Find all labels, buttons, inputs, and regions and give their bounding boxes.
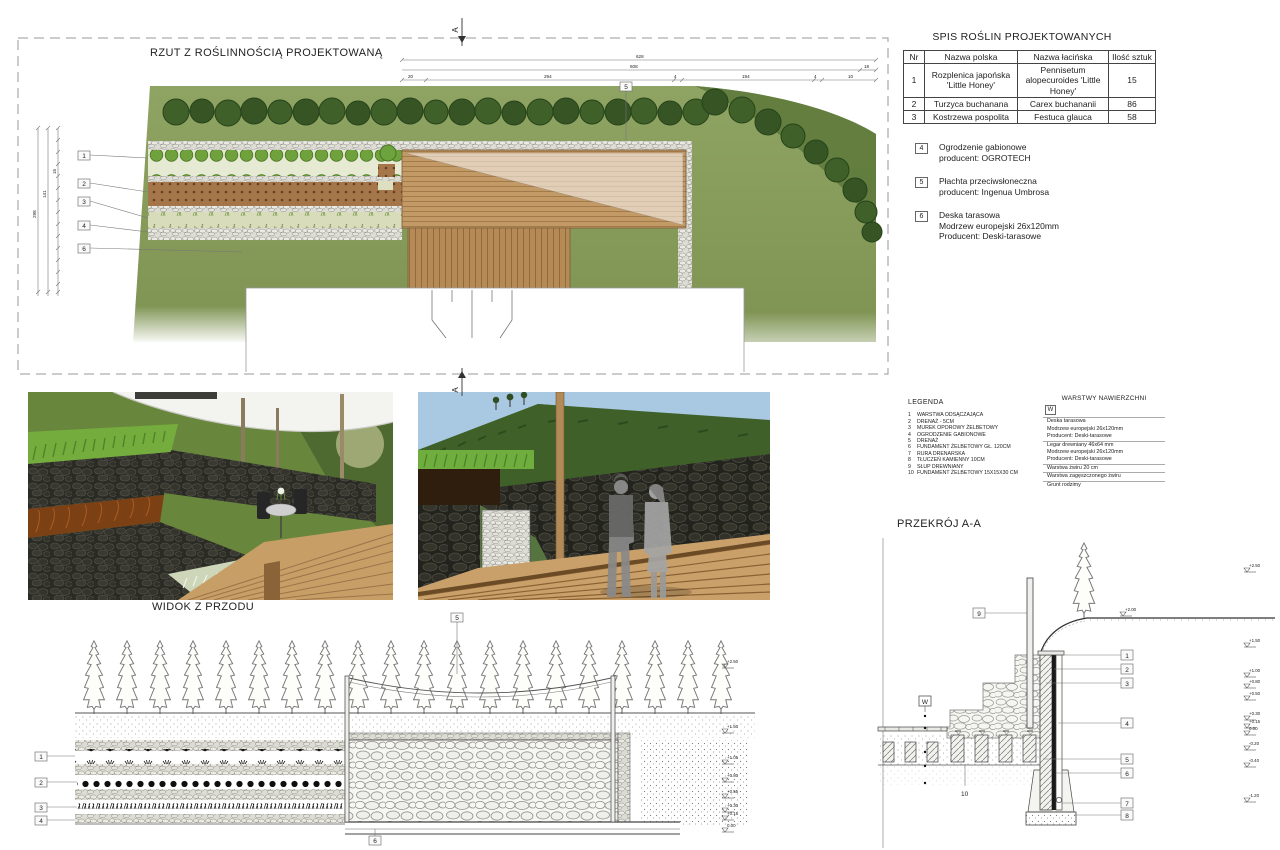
svg-text:4: 4 [814, 74, 817, 79]
layer-line: Producent: Deski-tarasowe [1043, 433, 1165, 440]
plan-title: RZUT Z ROŚLINNOŚCIĄ PROJEKTOWANĄ [150, 47, 383, 59]
layer-line: Legar drewniany 46x64 mm [1043, 441, 1165, 449]
plan-cutout [246, 288, 744, 374]
cell: Turzyca buchanana [925, 97, 1018, 110]
svg-text:0.00: 0.00 [1249, 726, 1258, 731]
svg-text:+1.00: +1.00 [1249, 668, 1261, 673]
svg-text:1: 1 [39, 754, 43, 761]
note-deck-board: 6 Deska tarasowa Modrzew europejski 26x1… [915, 210, 1059, 242]
svg-text:1: 1 [82, 153, 86, 160]
svg-text:10: 10 [961, 791, 969, 798]
plan-planting-strips [148, 141, 402, 240]
svg-text:+1.50: +1.50 [1249, 638, 1261, 643]
svg-text:+2.00: +2.00 [1125, 607, 1137, 612]
svg-text:18: 18 [864, 64, 870, 69]
note-gabion-fence: 4 Ogrodzenie gabionowe producent: OGROTE… [915, 142, 1031, 163]
svg-text:+1.05: +1.05 [727, 755, 739, 760]
svg-text:8: 8 [1125, 813, 1129, 820]
svg-text:A: A [451, 387, 460, 393]
svg-text:6: 6 [1125, 771, 1129, 778]
note-number: 6 [915, 211, 928, 222]
front-gabion-wall [345, 733, 630, 822]
svg-text:2: 2 [82, 181, 86, 188]
svg-text:6: 6 [373, 838, 377, 845]
note-line: Producent: Deski-tarasowe [939, 231, 1059, 242]
render-terrace-perspective [28, 392, 393, 600]
svg-text:+2.50: +2.50 [727, 659, 739, 664]
note-line: producent: Ingenua Umbrosa [939, 187, 1049, 198]
svg-text:628: 628 [636, 54, 644, 59]
svg-text:3: 3 [82, 199, 86, 206]
svg-text:298: 298 [32, 210, 37, 218]
svg-text:-0.40: -0.40 [1249, 758, 1260, 763]
plan-top-dimensions: 628 608 18 20 294 4 194 4 10 [400, 54, 878, 82]
svg-text:2: 2 [39, 780, 43, 787]
svg-text:15: 15 [52, 168, 57, 174]
svg-text:4: 4 [82, 223, 86, 230]
note-line: Ogrodzenie gabionowe [939, 142, 1031, 153]
svg-text:4: 4 [39, 818, 43, 825]
plant-table-header-row: Nr Nazwa polska Nazwa łacińska Ilość szt… [904, 51, 1156, 64]
svg-text:+0.30: +0.30 [1249, 711, 1261, 716]
note-line: producent: OGROTECH [939, 153, 1031, 164]
surface-layers-legend: WARSTWY NAWIERZCHNI W Deska tarasowa Mod… [1043, 395, 1165, 489]
svg-text:4: 4 [1125, 721, 1129, 728]
svg-text:+1.50: +1.50 [727, 724, 739, 729]
svg-text:+0.15: +0.15 [1249, 719, 1261, 724]
note-line: Modrzew europejski 26x120mm [939, 221, 1059, 232]
cell: Rozplenica japońska 'Little Honey' [925, 64, 1018, 98]
svg-text:+0.30: +0.30 [727, 803, 739, 808]
note-sun-sail: 5 Płachta przeciwsłoneczna producent: In… [915, 176, 1049, 197]
w-marker: W [1045, 405, 1056, 415]
svg-text:141: 141 [42, 190, 47, 198]
svg-text:4: 4 [674, 74, 677, 79]
svg-text:608: 608 [630, 64, 638, 69]
section-title: PRZEKRÓJ A-A [897, 518, 981, 530]
svg-text:-1.20: -1.20 [1249, 793, 1260, 798]
svg-text:2: 2 [1125, 667, 1129, 674]
legend-title: LEGENDA [908, 400, 1048, 406]
front-elevation-drawing: 1 2 3 4 5 6 +2.50 +1.50 +1.05 +0.80 +0.5… [25, 610, 765, 850]
svg-text:-0.20: -0.20 [1249, 741, 1260, 746]
cell: 2 [904, 97, 925, 110]
svg-text:0.00: 0.00 [727, 823, 736, 828]
col-quantity: Ilość sztuk [1109, 51, 1156, 64]
svg-text:A: A [451, 27, 460, 33]
section-drawing: +2.00 W 9 10 [875, 538, 1280, 850]
cell: 58 [1109, 110, 1156, 123]
cell: Festuca glauca [1018, 110, 1109, 123]
layer-line: Warstwa zagęszczonego żwiru [1043, 472, 1165, 480]
svg-text:3: 3 [1125, 681, 1129, 688]
plant-table: Nr Nazwa polska Nazwa łacińska Ilość szt… [903, 50, 1156, 124]
legend: LEGENDA 1WARSTWA ODSĄCZAJĄCA 2DRENAŻ - 5… [908, 400, 1048, 476]
svg-text:+2.50: +2.50 [1249, 563, 1261, 568]
svg-text:5: 5 [455, 615, 459, 622]
section-tree [1073, 543, 1094, 618]
table-row: 3 Kostrzewa pospolita Festuca glauca 58 [904, 110, 1156, 123]
svg-text:5: 5 [1125, 757, 1129, 764]
note-line: Deska tarasowa [939, 210, 1059, 221]
svg-text:+0.80: +0.80 [1249, 679, 1261, 684]
plan-section-marker-top: A [451, 18, 466, 46]
presentation-sheet: A A 628 608 18 20 294 4 194 4 10 298 141 [0, 0, 1280, 850]
svg-text:+0.80: +0.80 [727, 773, 739, 778]
layer-line: Deska tarasowa [1043, 417, 1165, 425]
svg-text:3: 3 [39, 805, 43, 812]
svg-text:10: 10 [848, 74, 854, 79]
svg-text:194: 194 [742, 74, 750, 79]
cell: 3 [904, 110, 925, 123]
plan-drawing: A A 628 608 18 20 294 4 194 4 10 298 141 [14, 12, 894, 400]
svg-text:+0.55: +0.55 [727, 789, 739, 794]
table-row: 2 Turzyca buchanana Carex buchananii 86 [904, 97, 1156, 110]
layer-line: Warstwa żwiru 20 cm [1043, 464, 1165, 472]
svg-text:20: 20 [408, 74, 414, 79]
svg-text:+0.15: +0.15 [727, 811, 739, 816]
render-deck-people-perspective [418, 392, 770, 600]
col-polish-name: Nazwa polska [925, 51, 1018, 64]
front-tree-row [84, 641, 732, 714]
plan-left-dimensions: 298 141 15 [32, 126, 60, 296]
cell: 86 [1109, 97, 1156, 110]
cell: 1 [904, 64, 925, 98]
layer-line: Producent: Deski-tarasowe [1043, 456, 1165, 463]
plan-lower-deck [408, 228, 570, 290]
cell: Pennisetum alopecuroides 'Little Honey' [1018, 64, 1109, 98]
note-line: Płachta przeciwsłoneczna [939, 176, 1049, 187]
svg-text:7: 7 [1125, 801, 1129, 808]
section-stepped-gravel [947, 655, 1040, 738]
section-deck-assembly [878, 727, 1040, 785]
svg-text:W: W [922, 699, 929, 706]
svg-text:+0.50: +0.50 [1249, 691, 1261, 696]
svg-text:9: 9 [977, 611, 981, 618]
svg-text:6: 6 [82, 246, 86, 253]
svg-text:294: 294 [544, 74, 552, 79]
svg-text:1: 1 [1125, 653, 1129, 660]
surface-layers-title: WARSTWY NAWIERZCHNI [1043, 395, 1165, 402]
note-number: 5 [915, 177, 928, 188]
section-elevation-marks: +2.50 +1.50 +1.00 +0.80 +0.50 +0.30 +0.1… [1244, 563, 1261, 802]
front-deck-band [345, 822, 680, 834]
cell: Carex buchananii [1018, 97, 1109, 110]
col-nr: Nr [904, 51, 925, 64]
render2-wood-post [556, 392, 564, 560]
svg-text:5: 5 [624, 84, 628, 91]
table-row: 1 Rozplenica japońska 'Little Honey' Pen… [904, 64, 1156, 98]
section-ground [1040, 618, 1275, 655]
layer-line: Grunt rodzimy [1043, 481, 1165, 489]
legend-item: 10FUNDAMENT ŻELBETOWY 15X15X30 CM [908, 470, 1048, 476]
cell: Kostrzewa pospolita [925, 110, 1018, 123]
layer-line: Modrzew europejski 26x120mm [1043, 449, 1165, 456]
front-planting-rows [75, 740, 345, 824]
col-latin-name: Nazwa łacińska [1018, 51, 1109, 64]
plant-table-title: SPIS ROŚLIN PROJEKTOWANYCH [903, 31, 1141, 43]
note-number: 4 [915, 143, 928, 154]
section-wood-post [1027, 578, 1033, 728]
section-ground-elevation: +2.00 [1120, 607, 1137, 616]
cell: 15 [1109, 64, 1156, 98]
layer-line: Modrzew europejski 26x120mm [1043, 426, 1165, 433]
